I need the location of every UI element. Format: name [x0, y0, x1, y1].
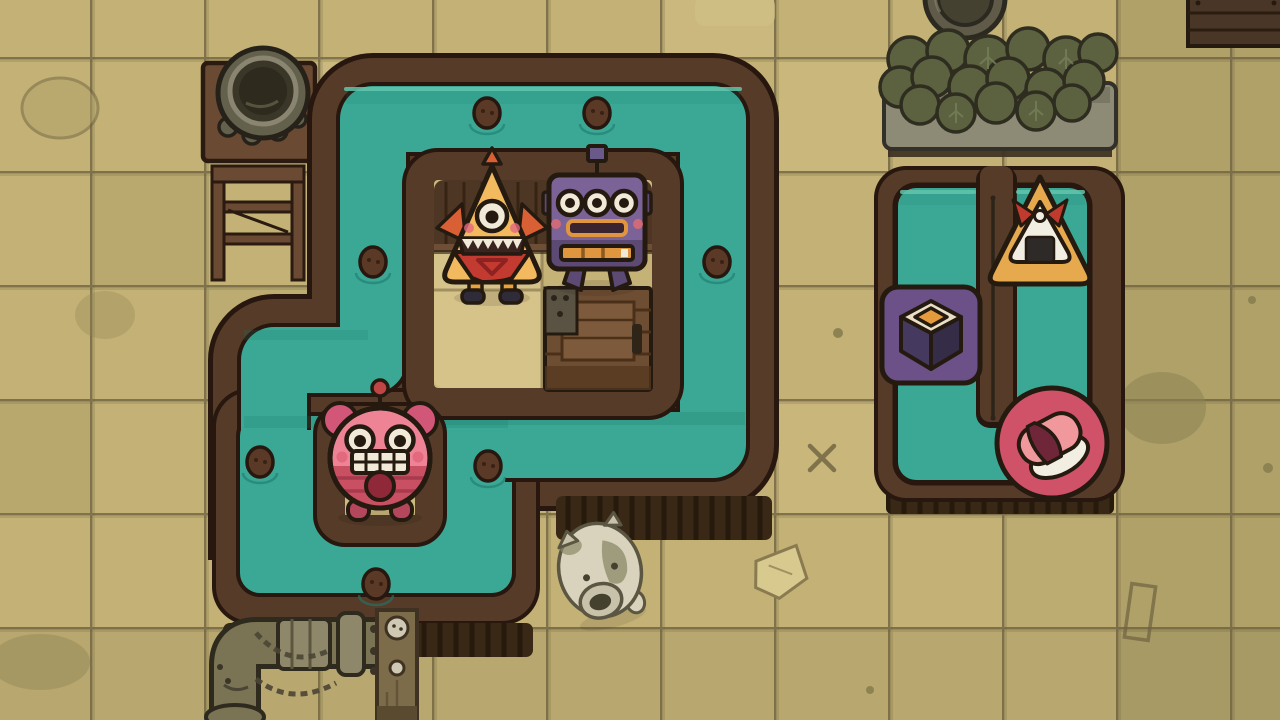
game-viewport: [0, 0, 1280, 720]
floor-stain: [1118, 372, 1206, 444]
antenna-ball: [372, 380, 388, 396]
maki-cube-sign[interactable]: [882, 287, 980, 383]
floor-speck: [1248, 296, 1256, 304]
water-shadow: [346, 91, 740, 104]
cauldron: [203, 48, 315, 161]
bolt-head: [386, 617, 408, 639]
floor-speck: [1263, 463, 1273, 473]
bolted-post: [377, 610, 417, 720]
planter: [880, 28, 1117, 157]
sushi-nigiri-sign[interactable]: [997, 388, 1107, 498]
floor-stain: [22, 78, 98, 138]
belly-button: [366, 472, 394, 500]
mouth: [568, 221, 626, 235]
crate-metal-bracket: [545, 288, 577, 334]
pipe-sleeve: [278, 619, 330, 669]
game-scene: [0, 0, 1280, 720]
floor-speck: [866, 686, 874, 694]
floor-speck: [833, 328, 843, 338]
wooden-crate: [545, 288, 651, 390]
crate-handle: [632, 324, 642, 354]
divider-wall: [980, 166, 1013, 422]
bolt-head: [390, 661, 404, 675]
antenna-top: [588, 146, 606, 161]
water-shadow: [244, 330, 368, 340]
pipe-foot: [206, 705, 264, 720]
nori-band: [1026, 237, 1054, 262]
corner-crate: [1188, 0, 1280, 46]
pipe-flange: [338, 613, 364, 675]
light-floor-patch: [695, 0, 775, 26]
floor-stain: [75, 291, 135, 339]
